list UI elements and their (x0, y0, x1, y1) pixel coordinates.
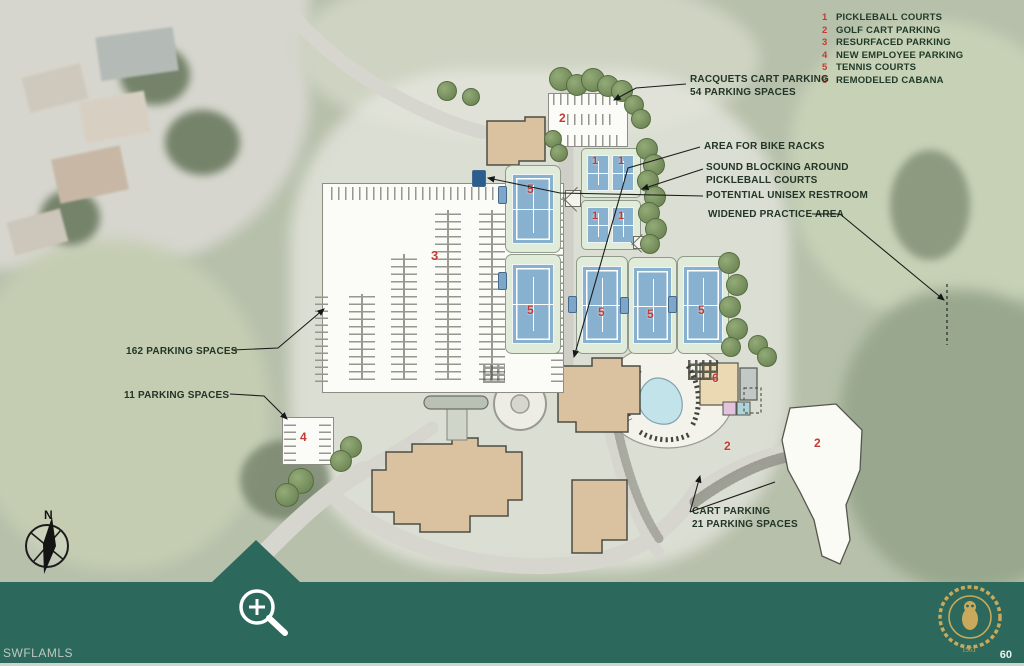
site-plan-image: 3 4 2 2 2 6 5 5 5 5 5 1 1 1 1 1PICKLEBAL… (0, 0, 1024, 666)
seal-year: 1961 (962, 646, 977, 654)
annotation-lines: N (0, 0, 1024, 666)
page-number: 60 (1000, 649, 1012, 661)
leader-162-spaces (232, 309, 324, 350)
leader-cart-parking-b (690, 482, 775, 512)
leader-bike-racks (574, 147, 700, 357)
leader-practice-area (812, 214, 944, 300)
north-arrow: N (26, 508, 68, 574)
north-arrow-label: N (44, 508, 53, 522)
leader-11-spaces (230, 394, 287, 419)
banner-peak (212, 540, 300, 582)
leader-sound-blocking (642, 169, 703, 189)
magnifier-plus-icon (230, 585, 302, 643)
owl-icon (964, 601, 976, 613)
leader-restroom (488, 178, 703, 196)
title-banner: WORTHINGTON C O U N T R Y C L U B Recomm… (0, 582, 1024, 666)
leader-racquets (614, 84, 686, 100)
leader-cart-parking-a (690, 476, 700, 512)
peacock-lewis-seal: 1961 (930, 583, 1010, 657)
mls-watermark: SWFLAMLS (3, 646, 73, 660)
